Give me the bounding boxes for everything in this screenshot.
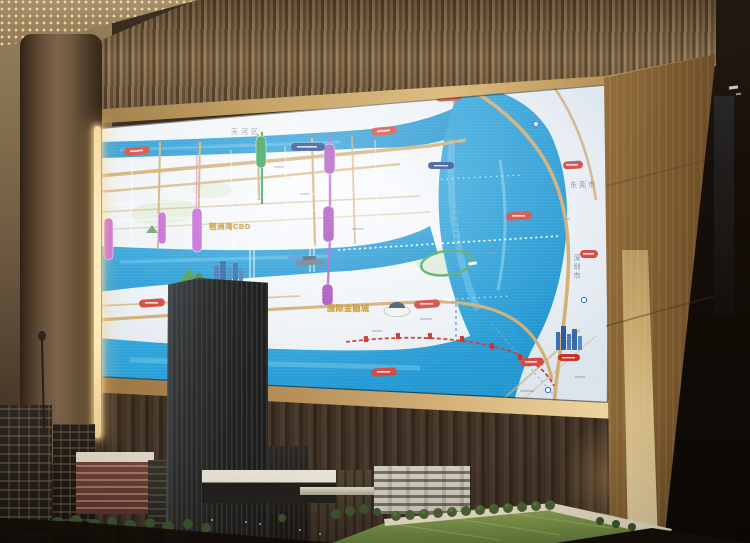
model-landscape xyxy=(0,0,750,543)
pillar-seams xyxy=(606,158,714,326)
model-lights xyxy=(211,519,321,535)
showroom-photo: 天河区 东莞市 深圳市 琶洲湾CBD 国际金融城 xyxy=(0,0,750,543)
street-lamp-model xyxy=(38,331,46,428)
